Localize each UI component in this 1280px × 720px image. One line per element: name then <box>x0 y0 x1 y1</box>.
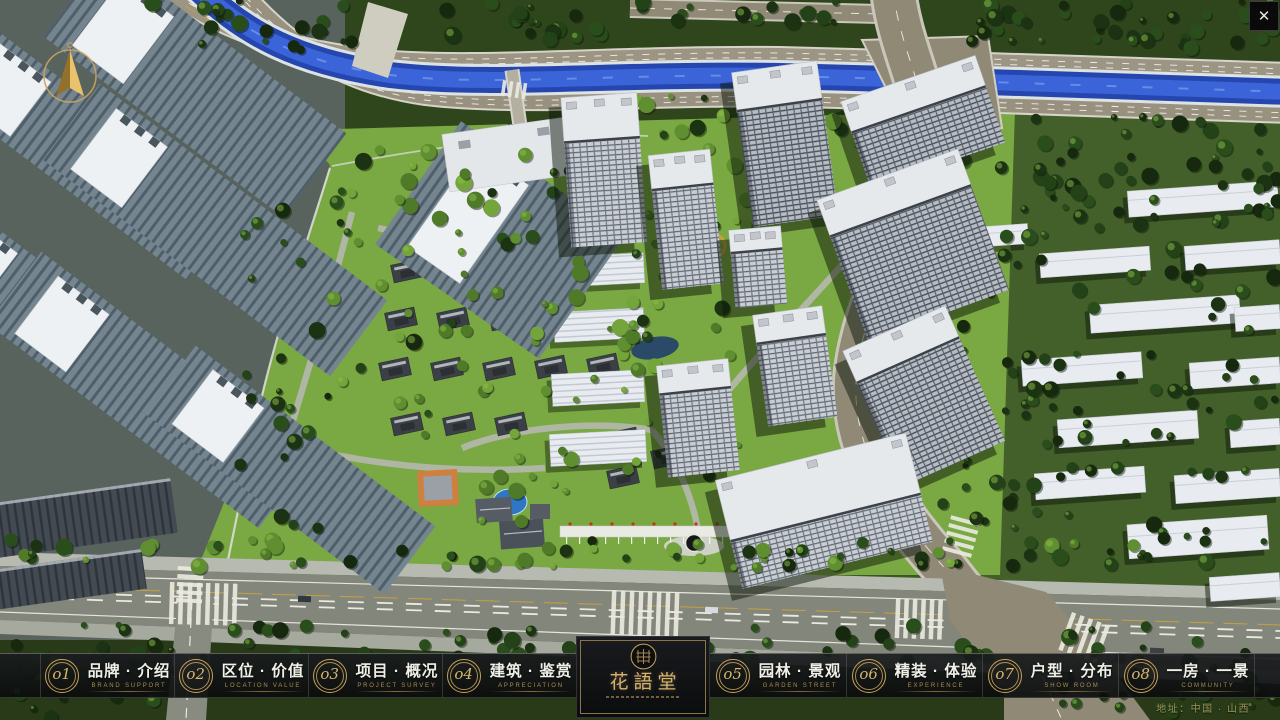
logo-subtitle-line <box>606 696 680 698</box>
nav-number-5: o5 <box>723 667 742 682</box>
nav-label-3: 项目 · 概况 <box>356 659 439 681</box>
nav-right-filler <box>1255 654 1280 697</box>
nav-number-8: o8 <box>1131 667 1150 682</box>
nav-sublabel-6: EXPERIENCE <box>908 683 965 689</box>
project-address: 地址：中国 · 山西 <box>1156 700 1250 715</box>
nav-item-views[interactable]: o8 一房 · 一景COMMUNITY <box>1119 654 1255 697</box>
nav-badge-1: o1 <box>45 659 79 693</box>
nav-label-1: 品牌 · 介绍 <box>88 659 171 681</box>
nav-item-interior[interactable]: o6 精装 · 体验EXPERIENCE <box>847 654 983 697</box>
nav-badge-3: o3 <box>313 659 347 693</box>
nav-number-6: o6 <box>859 667 878 682</box>
nav-item-brand[interactable]: o1 品牌 · 介绍BRAND SUPPORT <box>41 654 175 697</box>
nav-label-7: 户型 · 分布 <box>1031 659 1114 681</box>
nav-item-architecture[interactable]: o4 建筑 · 鉴赏APPRECIATION <box>443 654 577 697</box>
nav-sublabel-8: COMMUNITY <box>1181 683 1234 689</box>
gold-underline <box>895 691 978 692</box>
gold-underline <box>88 691 171 692</box>
project-logo-text: 花語堂 <box>604 672 681 693</box>
nav-badge-6: o6 <box>852 659 886 693</box>
nav-sublabel-7: SHOW ROOM <box>1044 683 1099 689</box>
nav-number-1: o1 <box>52 667 71 682</box>
close-button[interactable]: ✕ <box>1249 1 1279 31</box>
nav-badge-4: o4 <box>447 659 481 693</box>
nav-badge-2: o2 <box>179 659 213 693</box>
project-logo-panel[interactable]: 花語堂 <box>576 636 710 718</box>
gold-underline <box>759 691 842 692</box>
orange-courtyard-building <box>417 469 459 507</box>
nav-label-5: 园林 · 景观 <box>759 659 842 681</box>
gold-underline <box>356 691 439 692</box>
nav-label-6: 精装 · 体验 <box>895 659 978 681</box>
nav-label-8: 一房 · 一景 <box>1167 659 1250 681</box>
nav-number-2: o2 <box>186 667 205 682</box>
compass-icon <box>38 36 102 110</box>
nav-sublabel-1: BRAND SUPPORT <box>92 683 167 689</box>
gold-underline <box>222 691 305 692</box>
nav-sublabel-5: GARDEN STREET <box>763 683 837 689</box>
sales-presentation-window: ✕ o1 品牌 · 介绍BRAND SUPPORT o2 区位 · 价值LOCA… <box>0 0 1280 720</box>
nav-badge-5: o5 <box>716 659 750 693</box>
nav-item-project[interactable]: o3 项目 · 概况PROJECT SURVEY <box>309 654 443 697</box>
nav-number-3: o3 <box>320 667 339 682</box>
nav-item-location[interactable]: o2 区位 · 价值LOCATION VALUE <box>175 654 309 697</box>
gold-underline <box>490 691 573 692</box>
nav-number-7: o7 <box>995 667 1014 682</box>
nav-badge-7: o7 <box>988 659 1022 693</box>
nav-badge-8: o8 <box>1124 659 1158 693</box>
nav-sublabel-4: APPRECIATION <box>498 683 564 689</box>
gold-underline <box>1031 691 1114 692</box>
nav-label-4: 建筑 · 鉴赏 <box>490 659 573 681</box>
nav-item-floorplan[interactable]: o7 户型 · 分布SHOW ROOM <box>983 654 1119 697</box>
gold-underline <box>1167 691 1250 692</box>
masterplan-map[interactable] <box>0 0 1280 720</box>
nav-sublabel-3: PROJECT SURVEY <box>357 683 436 689</box>
close-icon: ✕ <box>1258 7 1271 25</box>
nav-number-4: o4 <box>454 667 473 682</box>
masterplan-scene <box>0 0 1280 720</box>
seal-icon <box>630 643 657 670</box>
nav-label-2: 区位 · 价值 <box>222 659 305 681</box>
nav-left-spacer <box>0 654 41 697</box>
nav-sublabel-2: LOCATION VALUE <box>225 683 301 689</box>
nav-item-garden[interactable]: o5 园林 · 景观GARDEN STREET <box>711 654 847 697</box>
